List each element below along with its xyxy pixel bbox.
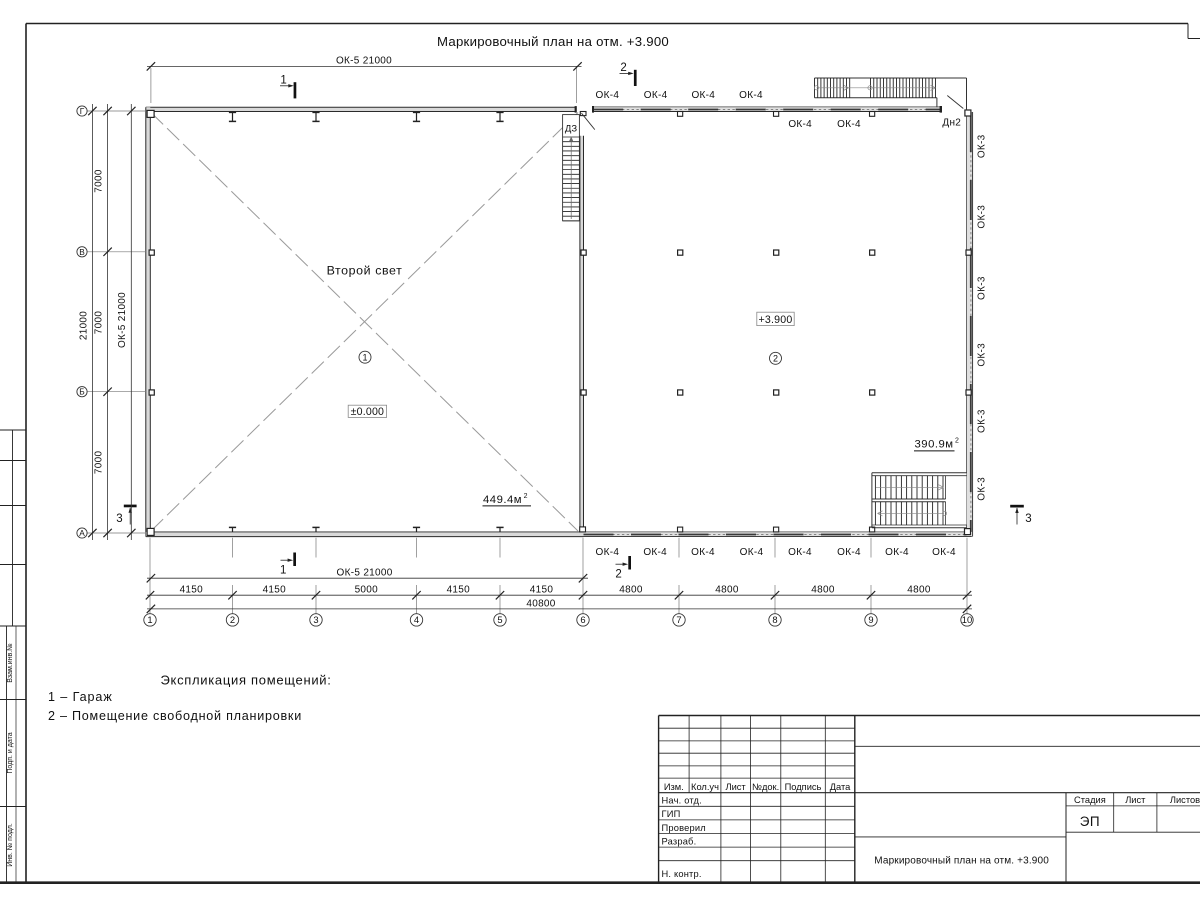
svg-text:4150: 4150 xyxy=(530,584,554,595)
svg-text:ОК-3: ОК-3 xyxy=(976,134,987,158)
svg-text:4: 4 xyxy=(414,614,419,625)
svg-text:Б: Б xyxy=(79,387,85,397)
svg-text:4150: 4150 xyxy=(263,584,287,595)
svg-text:7: 7 xyxy=(676,614,681,625)
svg-text:№док.: №док. xyxy=(752,782,779,792)
svg-text:4150: 4150 xyxy=(180,584,204,595)
svg-text:ОК-4: ОК-4 xyxy=(644,90,668,101)
svg-text:Инв. № подл.: Инв. № подл. xyxy=(7,823,14,867)
svg-text:Маркировочный план на отм. +3.: Маркировочный план на отм. +3.900 xyxy=(874,856,1049,867)
svg-text:Г: Г xyxy=(80,106,85,116)
svg-text:ОК-4: ОК-4 xyxy=(596,90,620,101)
svg-text:ОК-5 21000: ОК-5 21000 xyxy=(336,56,392,67)
svg-text:3: 3 xyxy=(1025,513,1031,525)
svg-text:ОК-4: ОК-4 xyxy=(739,90,763,101)
svg-text:Дата: Дата xyxy=(830,782,851,792)
svg-text:ГИП: ГИП xyxy=(662,809,681,819)
svg-text:ОК-5 21000: ОК-5 21000 xyxy=(337,567,393,578)
svg-text:2: 2 xyxy=(955,438,959,445)
svg-text:Маркировочный план на отм. +3.: Маркировочный план на отм. +3.900 xyxy=(437,34,669,49)
svg-text:ОК-3: ОК-3 xyxy=(976,276,987,300)
svg-text:10: 10 xyxy=(962,614,972,625)
svg-text:3: 3 xyxy=(313,614,318,625)
svg-text:ОК-3: ОК-3 xyxy=(976,343,987,367)
svg-text:2: 2 xyxy=(620,62,626,74)
svg-text:9: 9 xyxy=(868,614,873,625)
svg-text:Дн2: Дн2 xyxy=(942,117,961,128)
svg-text:+3.900: +3.900 xyxy=(759,314,793,326)
svg-text:Лист: Лист xyxy=(1125,795,1146,805)
svg-text:ОК-4: ОК-4 xyxy=(837,119,861,130)
svg-text:6: 6 xyxy=(580,614,585,625)
svg-text:Подп. и дата: Подп. и дата xyxy=(7,732,14,773)
svg-text:Разраб.: Разраб. xyxy=(662,836,697,846)
svg-text:21000: 21000 xyxy=(78,311,89,340)
svg-text:1: 1 xyxy=(362,353,367,363)
svg-text:Листов: Листов xyxy=(1170,795,1200,805)
svg-text:1: 1 xyxy=(147,614,152,625)
svg-text:ОК-4: ОК-4 xyxy=(788,547,812,558)
svg-text:Лист: Лист xyxy=(725,782,746,792)
svg-text:ОК-4: ОК-4 xyxy=(691,90,715,101)
svg-text:7000: 7000 xyxy=(94,169,105,193)
svg-text:ОК-4: ОК-4 xyxy=(885,547,909,558)
svg-text:ОК-4: ОК-4 xyxy=(788,119,812,130)
svg-text:ОК-3: ОК-3 xyxy=(976,477,987,501)
svg-text:Изм.: Изм. xyxy=(664,782,684,792)
svg-text:5: 5 xyxy=(497,614,502,625)
svg-text:ЭП: ЭП xyxy=(1080,814,1100,829)
svg-text:1: 1 xyxy=(280,75,286,87)
svg-text:4800: 4800 xyxy=(619,584,643,595)
svg-text:3: 3 xyxy=(116,513,122,525)
svg-text:2: 2 xyxy=(615,569,621,581)
svg-text:Нач. отд.: Нач. отд. xyxy=(662,796,702,806)
svg-text:Экспликация помещений:: Экспликация помещений: xyxy=(161,673,332,688)
svg-text:5000: 5000 xyxy=(355,584,379,595)
svg-text:2: 2 xyxy=(524,493,528,500)
svg-text:40800: 40800 xyxy=(526,598,555,609)
svg-text:ОК-4: ОК-4 xyxy=(691,547,715,558)
svg-text:Подпись: Подпись xyxy=(785,782,822,792)
svg-text:Стадия: Стадия xyxy=(1074,795,1106,805)
svg-text:±0.000: ±0.000 xyxy=(351,406,385,418)
svg-text:ОК-4: ОК-4 xyxy=(643,547,667,558)
svg-text:ОК-4: ОК-4 xyxy=(596,547,620,558)
svg-text:4800: 4800 xyxy=(715,584,739,595)
svg-text:2 – Помещение свободной планир: 2 – Помещение свободной планировки xyxy=(48,709,302,723)
svg-text:4800: 4800 xyxy=(811,584,835,595)
svg-text:7000: 7000 xyxy=(94,451,105,475)
svg-text:4150: 4150 xyxy=(447,584,471,595)
svg-text:А: А xyxy=(79,528,85,538)
svg-text:4800: 4800 xyxy=(907,584,931,595)
svg-text:7000: 7000 xyxy=(94,311,105,335)
svg-text:ОК-4: ОК-4 xyxy=(837,547,861,558)
svg-text:1 – Гараж: 1 – Гараж xyxy=(48,690,113,704)
svg-text:ОК-3: ОК-3 xyxy=(976,409,987,433)
svg-text:1: 1 xyxy=(280,565,286,577)
svg-text:ОК-3: ОК-3 xyxy=(976,205,987,229)
svg-text:Н. контр.: Н. контр. xyxy=(662,869,702,879)
svg-text:Второй свет: Второй свет xyxy=(327,264,403,278)
svg-text:ОК-5 21000: ОК-5 21000 xyxy=(117,292,128,348)
svg-text:В: В xyxy=(79,247,85,257)
svg-text:Взам.инв.№: Взам.инв.№ xyxy=(7,643,14,682)
svg-text:449.4м: 449.4м xyxy=(483,494,522,506)
svg-text:ОК-4: ОК-4 xyxy=(740,547,764,558)
svg-text:ОК-4: ОК-4 xyxy=(932,547,956,558)
svg-text:8: 8 xyxy=(772,614,777,625)
svg-text:2: 2 xyxy=(773,354,778,364)
svg-text:Кол.уч: Кол.уч xyxy=(691,782,719,792)
svg-text:Проверил: Проверил xyxy=(662,823,706,833)
svg-text:2: 2 xyxy=(230,614,235,625)
svg-text:ДЗ: ДЗ xyxy=(565,124,577,135)
svg-text:390.9м: 390.9м xyxy=(915,439,954,451)
